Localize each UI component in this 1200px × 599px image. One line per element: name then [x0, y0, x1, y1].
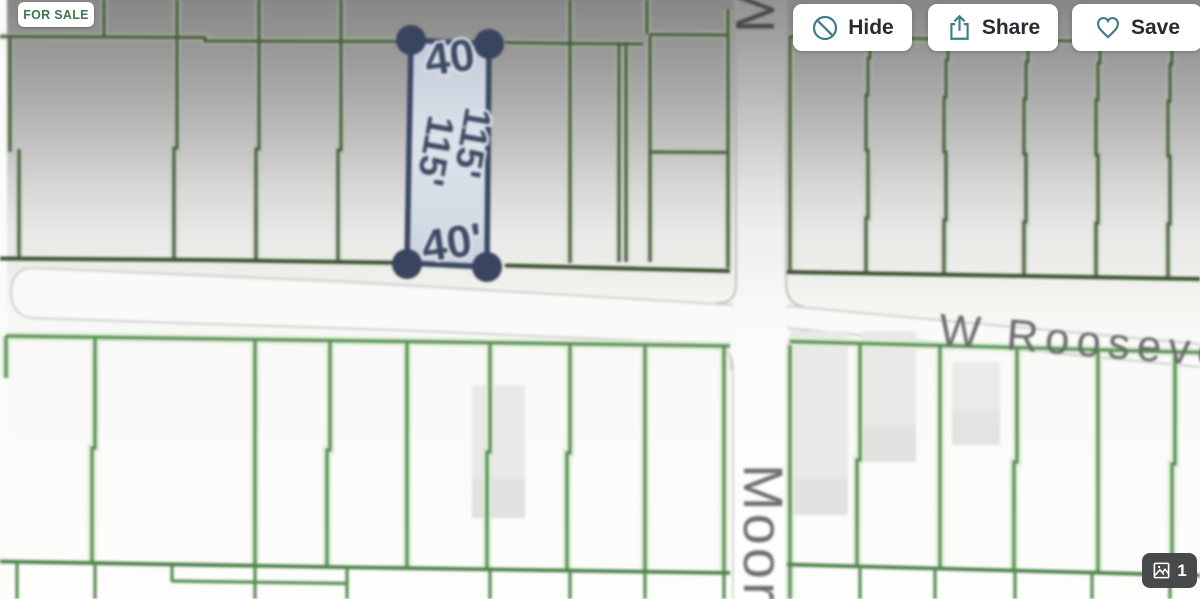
svg-text:Moore: Moore [732, 464, 795, 599]
svg-text:40: 40 [421, 28, 478, 85]
svg-text:M: M [724, 0, 786, 33]
svg-text:40': 40' [418, 213, 485, 272]
